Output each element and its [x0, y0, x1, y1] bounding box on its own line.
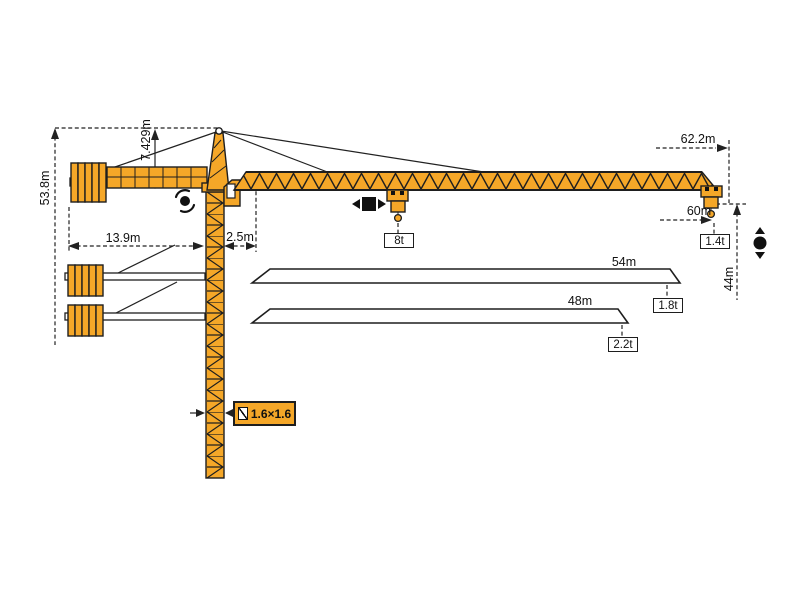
label-jib-variant-48m: 48m	[555, 293, 605, 309]
trolley-mid	[387, 190, 408, 233]
jib	[234, 172, 717, 190]
tower-mast	[202, 183, 228, 478]
label-tip-load-max: 1.4t	[700, 234, 730, 249]
mast-section-value: 1.6×1.6	[251, 407, 291, 421]
label-tip-load-54m: 1.8t	[653, 298, 683, 313]
jib-variant-48m-bar	[252, 309, 628, 336]
label-max-capacity: 8t	[384, 233, 414, 248]
hoist-icon	[754, 227, 767, 259]
label-jib-variant-54m: 54m	[599, 254, 649, 270]
mast-section-label: 1.6×1.6	[233, 401, 296, 426]
jib-variant-54m-bar	[252, 269, 680, 297]
trolley-travel-icon	[352, 197, 386, 211]
counterweight-top	[71, 163, 106, 202]
label-counter-jib-radius: 13.9m	[98, 230, 148, 246]
crane-diagram-canvas: 53.8m 7.429m 13.9m 2.5m 62.2m 60m 44m 54…	[0, 0, 800, 600]
label-jib-root-offset: 2.5m	[215, 229, 265, 245]
label-hook-height: 44m	[721, 249, 737, 309]
slewing-icon	[176, 190, 194, 212]
label-tip-load-48m: 2.2t	[608, 337, 638, 352]
label-tower-head-height: 7.429m	[138, 110, 154, 170]
label-overall-height: 53.8m	[37, 158, 53, 218]
label-max-radius: 62.2m	[673, 131, 723, 147]
label-working-radius: 60m	[674, 203, 724, 219]
tower-apex	[207, 128, 229, 190]
cross-section-icon	[238, 407, 248, 420]
ballast-unit-1	[65, 245, 205, 296]
